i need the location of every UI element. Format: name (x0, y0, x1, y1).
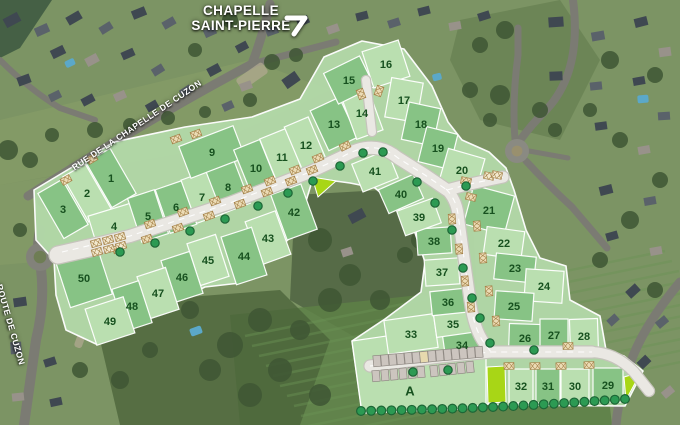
lot-number-27[interactable]: 27 (548, 330, 560, 342)
lot-number-48[interactable]: 48 (126, 301, 138, 313)
lot-number-18[interactable]: 18 (415, 119, 427, 131)
lot-number-41[interactable]: 41 (369, 166, 381, 178)
tree-canopy (142, 342, 158, 358)
hedge-tree-icon (377, 406, 386, 415)
lot-number-13[interactable]: 13 (328, 119, 340, 131)
garage-box (417, 366, 425, 378)
driveway-marker (448, 214, 456, 225)
garage-box (381, 355, 389, 367)
lot-number-34[interactable]: 34 (456, 340, 469, 352)
lot-number-11[interactable]: 11 (276, 152, 288, 164)
hedge-tree-icon (550, 399, 559, 408)
tree-canopy (318, 288, 342, 312)
tree-canopy (87, 122, 103, 138)
lot-number-43[interactable]: 43 (262, 233, 274, 245)
garage-box (457, 362, 466, 374)
hedge-tree-icon (600, 396, 609, 405)
tree-icon (462, 182, 470, 190)
tree-canopy (268, 358, 292, 382)
garage-box (467, 347, 475, 359)
tree-canopy (188, 43, 202, 57)
garage-box (466, 361, 475, 373)
lot-number-21[interactable]: 21 (483, 205, 495, 217)
lot-number-23[interactable]: 23 (509, 263, 521, 275)
tree-canopy (199, 106, 211, 118)
lot-number-45[interactable]: 45 (202, 255, 214, 267)
tree-canopy (238, 383, 262, 407)
tree-canopy (397, 247, 413, 263)
lot-number-42[interactable]: 42 (288, 207, 300, 219)
house-roof (658, 112, 671, 121)
hedge-tree-icon (610, 395, 619, 404)
lot-number-10[interactable]: 10 (250, 163, 262, 175)
tree-canopy (583, 103, 597, 117)
green-strip (487, 366, 506, 403)
tree-icon (413, 178, 421, 186)
lot-number-19[interactable]: 19 (432, 143, 444, 155)
lot-number-35[interactable]: 35 (447, 319, 459, 331)
lot-number-9[interactable]: 9 (209, 147, 215, 159)
garage-box (475, 346, 483, 358)
lot-number-32[interactable]: 32 (515, 381, 527, 393)
hedge-tree-icon (418, 405, 427, 414)
tree-icon (448, 226, 456, 234)
tree-canopy (217, 332, 243, 358)
lot-number-26[interactable]: 26 (519, 333, 531, 345)
tree-icon (284, 189, 292, 197)
lot-number-2[interactable]: 2 (84, 188, 90, 200)
green-reserve (487, 366, 506, 403)
lot-number-3[interactable]: 3 (60, 204, 66, 216)
lot-number-37[interactable]: 37 (436, 267, 448, 279)
tree-icon (468, 294, 476, 302)
tree-canopy (532, 102, 548, 118)
house-roof (590, 81, 603, 90)
driveway-marker (563, 342, 573, 349)
driveway-marker (504, 362, 514, 369)
garage-box (428, 350, 436, 362)
tree-canopy (490, 85, 510, 105)
lot-number-7[interactable]: 7 (199, 192, 205, 204)
driveway-marker (556, 362, 566, 369)
tree-canopy (370, 290, 390, 310)
tree-canopy (462, 82, 478, 98)
lot-number-36[interactable]: 36 (442, 297, 454, 309)
tree-icon (309, 177, 317, 185)
tree-canopy (496, 21, 514, 39)
hedge-tree-icon (478, 403, 487, 412)
driveway-marker (492, 316, 500, 327)
tree-canopy (199, 359, 221, 381)
tree-canopy (264, 54, 280, 70)
tree-canopy (647, 282, 663, 298)
tree-icon (221, 215, 229, 223)
driveway-marker (479, 253, 487, 264)
lot-number-17[interactable]: 17 (398, 95, 410, 107)
garage-box (443, 349, 451, 361)
house-roof (12, 392, 25, 401)
lot-number-49[interactable]: 49 (104, 316, 116, 328)
tree-icon (486, 339, 494, 347)
lot-number-6[interactable]: 6 (173, 202, 179, 214)
hedge-tree-icon (407, 405, 416, 414)
hedge-tree-icon (580, 397, 589, 406)
driveway-marker-box (530, 362, 540, 369)
lot-number-12[interactable]: 12 (300, 140, 312, 152)
driveway-marker-box (504, 362, 514, 369)
tree-canopy (472, 37, 488, 53)
tree-canopy (181, 301, 199, 319)
garage-box (430, 365, 439, 377)
garage-box (390, 369, 398, 381)
tree-canopy (289, 48, 303, 62)
hedge-tree-icon (499, 402, 508, 411)
driveway-marker-box (556, 362, 566, 369)
lot-number-22[interactable]: 22 (498, 238, 510, 250)
zone-a-label[interactable]: A (405, 384, 415, 399)
tree-canopy (339, 264, 361, 286)
tree-canopy (621, 211, 639, 229)
garage-box-special (419, 351, 428, 363)
tree-icon (186, 227, 194, 235)
lot-number-30[interactable]: 30 (569, 381, 581, 393)
tree-canopy (290, 320, 310, 340)
hedge-tree-icon (621, 395, 630, 404)
tree-icon (476, 314, 484, 322)
hedge-tree-icon (529, 401, 538, 410)
lot-number-25[interactable]: 25 (508, 301, 520, 313)
hedge-tree-icon (397, 406, 406, 415)
lot-number-29[interactable]: 29 (602, 380, 614, 392)
garage-box (381, 369, 389, 381)
tree-canopy (72, 362, 88, 378)
lot-number-8[interactable]: 8 (225, 182, 231, 194)
garage-box (373, 355, 381, 367)
driveway-marker-box (563, 342, 573, 349)
lot-number-50[interactable]: 50 (78, 273, 90, 285)
swimming-pool (637, 95, 649, 104)
house-roof (548, 16, 564, 27)
garage-box (399, 368, 407, 380)
driveway-marker (485, 286, 493, 297)
lot-number-15[interactable]: 15 (343, 75, 355, 87)
hedge-tree-icon (560, 399, 569, 408)
site-plan-map: 1234567891011121314151617181920212223242… (0, 0, 680, 425)
lot-number-4[interactable]: 4 (111, 221, 118, 233)
tree-icon (336, 162, 344, 170)
lot-number-47[interactable]: 47 (152, 288, 164, 300)
lot-number-5[interactable]: 5 (145, 211, 151, 223)
driveway-marker (461, 276, 469, 287)
lot-number-33[interactable]: 33 (405, 329, 417, 341)
hedge-tree-icon (438, 405, 447, 414)
hedge-tree-icon (590, 397, 599, 406)
tree-canopy (483, 113, 497, 127)
tree-icon (431, 199, 439, 207)
hedge-tree-icon (357, 407, 366, 416)
aerial-site-plan-svg: 1234567891011121314151617181920212223242… (0, 0, 680, 425)
hedge-tree-icon (458, 404, 467, 413)
hedge-tree-icon (428, 405, 437, 414)
lot-number-44[interactable]: 44 (238, 251, 251, 263)
tree-canopy (309, 384, 331, 406)
hedge-tree-icon (468, 403, 477, 412)
tree-canopy (548, 123, 562, 137)
tree-icon (530, 346, 538, 354)
lot-number-46[interactable]: 46 (176, 272, 188, 284)
house-roof (658, 47, 671, 58)
direction-arrow-icon (284, 13, 310, 39)
lot-number-39[interactable]: 39 (413, 212, 425, 224)
tree-canopy (22, 152, 38, 168)
tree-canopy (612, 132, 628, 148)
house-roof (13, 297, 27, 308)
lot-number-14[interactable]: 14 (356, 108, 369, 120)
driveway-marker (467, 302, 475, 313)
house-roof (595, 121, 608, 131)
tree-canopy (111, 371, 129, 389)
driveway-marker (473, 221, 481, 232)
tree-canopy (13, 223, 27, 237)
driveway-marker (584, 361, 594, 368)
tree-icon (254, 202, 262, 210)
hedge-tree-icon (570, 398, 579, 407)
garage-box (396, 353, 404, 365)
tree-icon (359, 149, 367, 157)
roundabout-island (512, 146, 523, 157)
tree-icon (459, 264, 467, 272)
house-roof (549, 71, 562, 80)
tree-canopy (592, 252, 608, 268)
driveway-marker (455, 244, 463, 255)
tree-icon (151, 239, 159, 247)
lot-number-40[interactable]: 40 (395, 189, 407, 201)
garage-box (404, 352, 412, 364)
lot-number-28[interactable]: 28 (578, 331, 590, 343)
lot-number-24[interactable]: 24 (538, 281, 551, 293)
garage-box (372, 370, 380, 382)
tree-canopy (243, 93, 257, 107)
hedge-tree-icon (519, 401, 528, 410)
tree-canopy (248, 308, 272, 332)
hedge-tree-icon (448, 404, 457, 413)
tree-icon (409, 368, 417, 376)
hedge-tree-icon (509, 402, 518, 411)
existing-road (514, 28, 518, 139)
hedge-tree-icon (367, 406, 376, 415)
tree-icon (379, 148, 387, 156)
hedge-tree-icon (387, 406, 396, 415)
tree-icon (444, 366, 452, 374)
lot-number-20[interactable]: 20 (456, 165, 468, 177)
tree-canopy (601, 51, 619, 69)
hedge-tree-icon (539, 400, 548, 409)
tree-icon (116, 248, 124, 256)
roundabout-island (34, 251, 47, 264)
hedge-tree-icon (489, 403, 498, 412)
lot-number-38[interactable]: 38 (428, 236, 440, 248)
lot-number-1[interactable]: 1 (108, 173, 114, 185)
driveway-marker (530, 362, 540, 369)
garage-box (389, 354, 397, 366)
tree-canopy (45, 128, 59, 142)
driveway-marker-box (584, 361, 594, 368)
garage-box (412, 352, 420, 364)
garage-box (436, 350, 444, 362)
lot-number-16[interactable]: 16 (380, 59, 392, 71)
tree-canopy (647, 67, 663, 83)
lot-number-31[interactable]: 31 (542, 381, 554, 393)
tree-canopy (652, 172, 668, 188)
